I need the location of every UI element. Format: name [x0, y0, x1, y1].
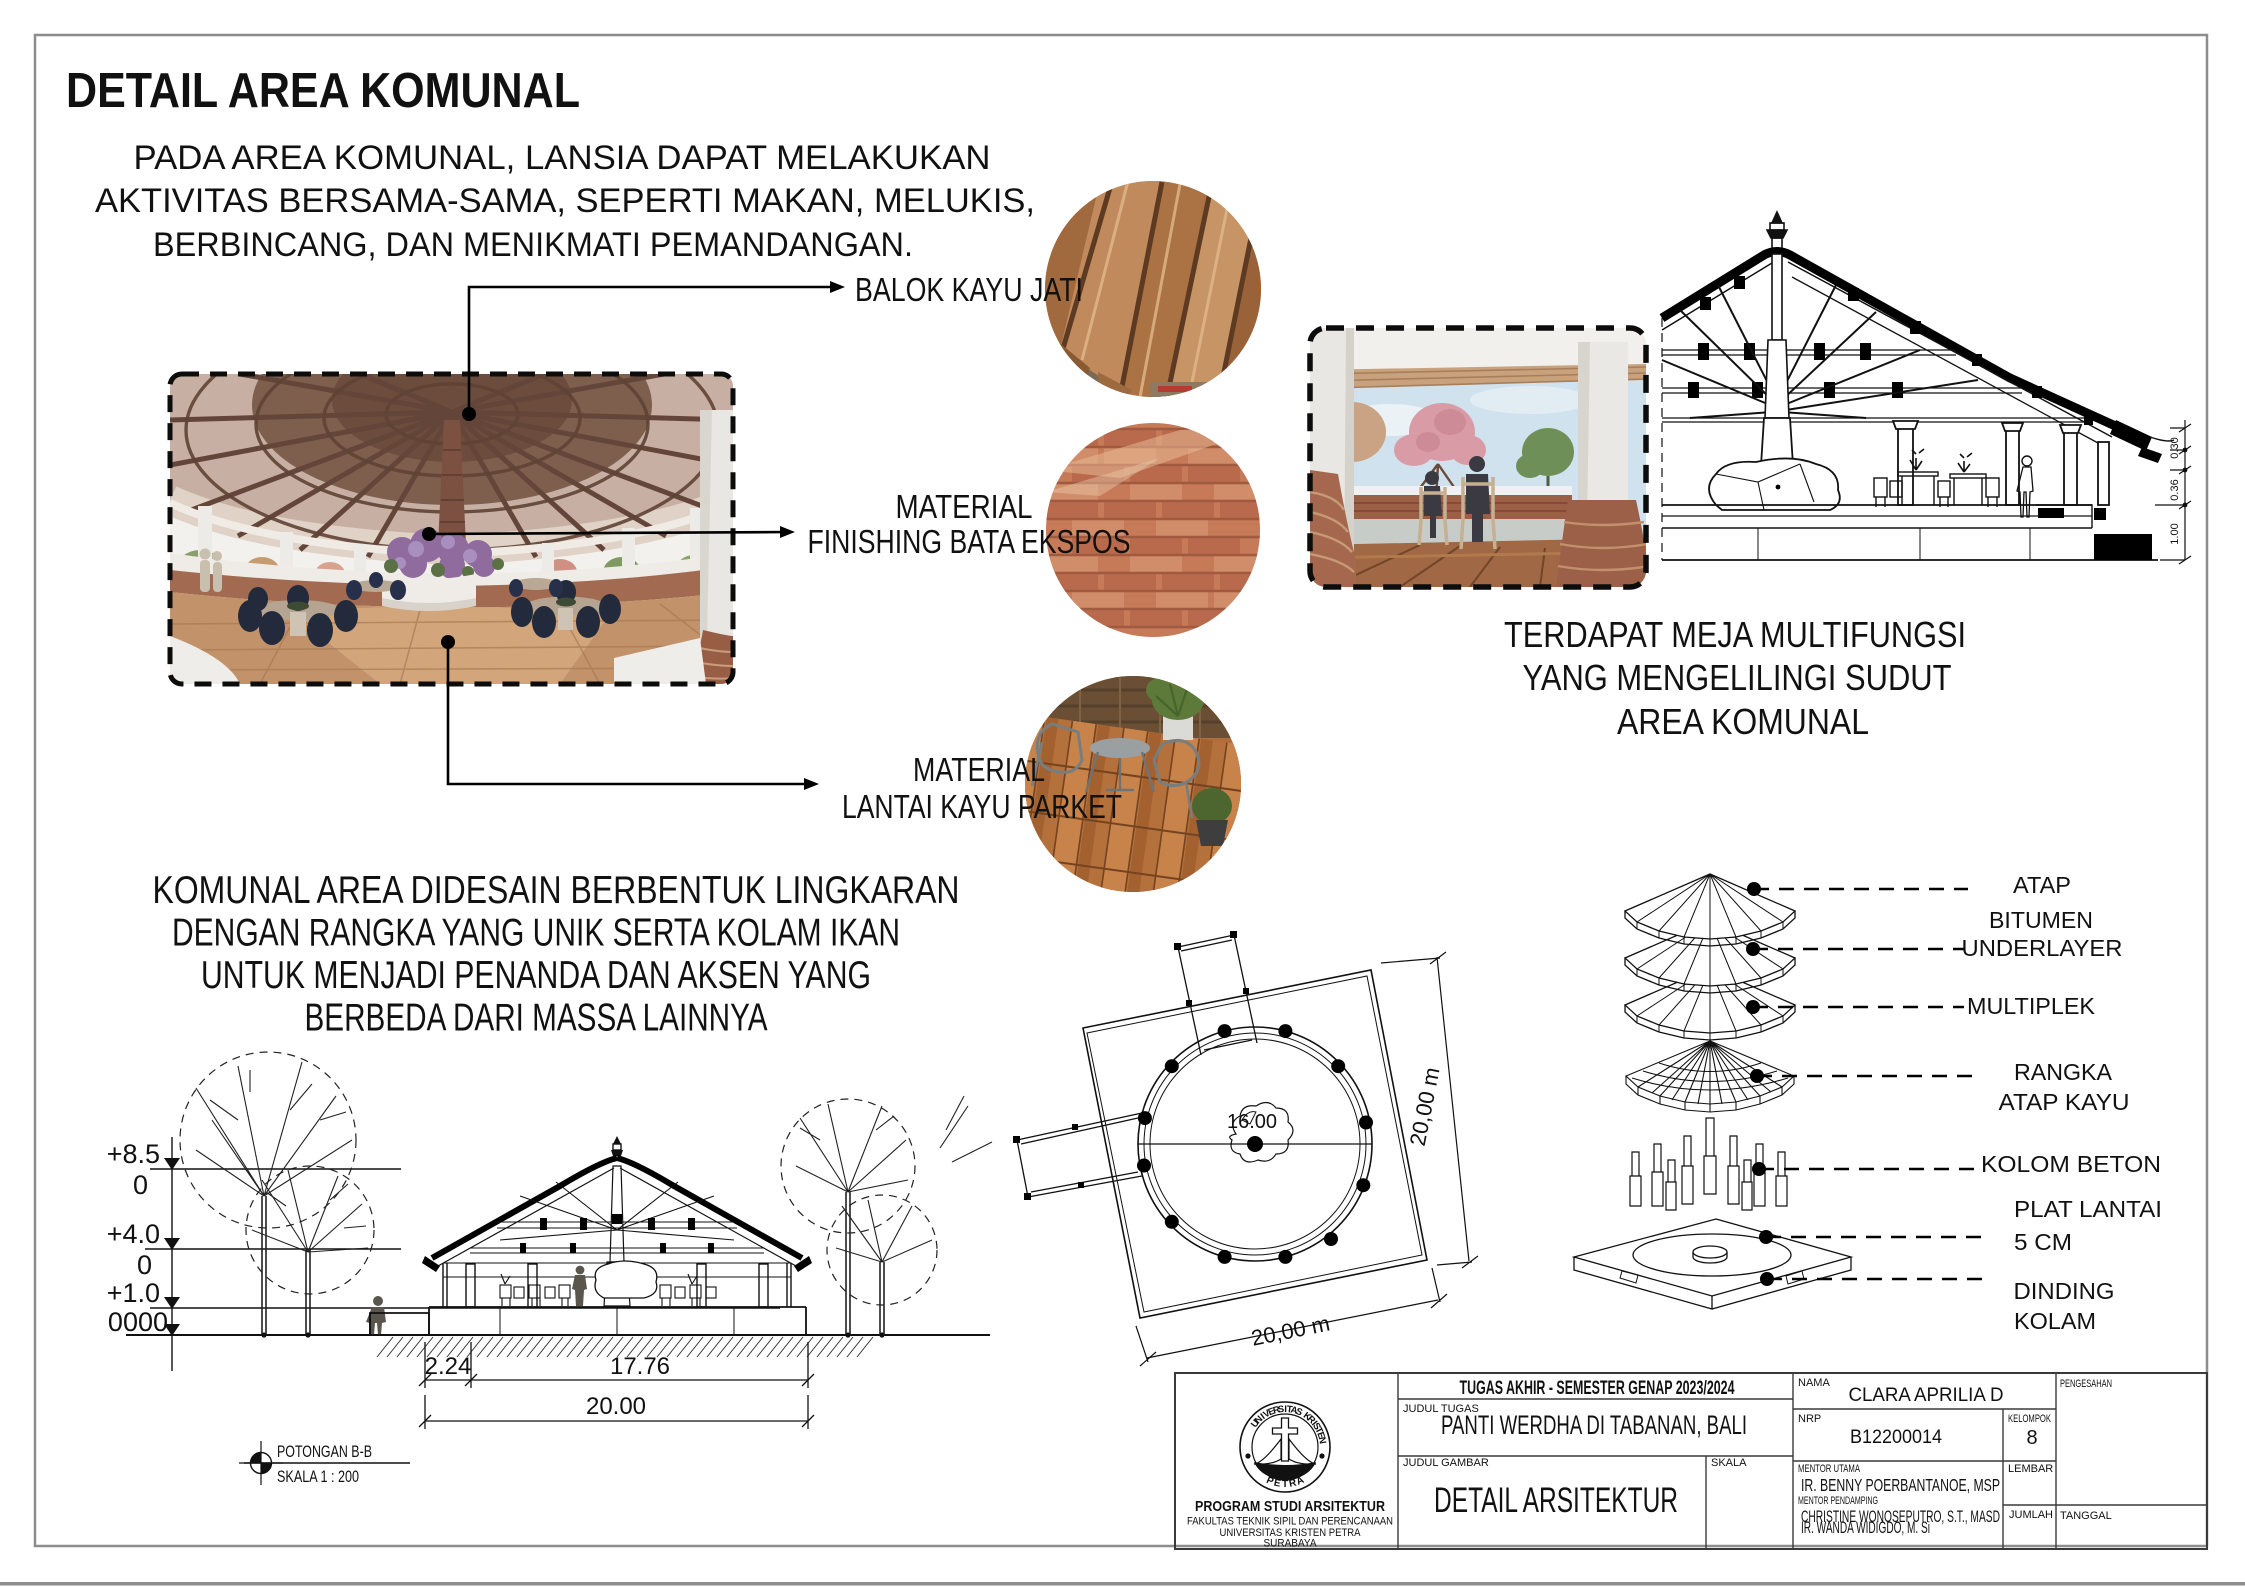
svg-text:DETAIL AREA KOMUNAL: DETAIL AREA KOMUNAL — [66, 64, 580, 118]
svg-text:+1.0: +1.0 — [107, 1278, 160, 1308]
svg-text:16.00: 16.00 — [1227, 1111, 1277, 1133]
svg-text:NRP: NRP — [1798, 1413, 1821, 1425]
svg-text:RANGKA: RANGKA — [2014, 1059, 2113, 1085]
svg-text:MATERIAL: MATERIAL — [913, 751, 1045, 788]
svg-text:POTONGAN B-B: POTONGAN B-B — [277, 1442, 372, 1461]
svg-text:8: 8 — [2026, 1427, 2037, 1449]
svg-text:PADA AREA KOMUNAL, LANSIA DAPA: PADA AREA KOMUNAL, LANSIA DAPAT MELAKUKA… — [134, 139, 991, 177]
svg-text:DENGAN RANGKA YANG UNIK SERTA: DENGAN RANGKA YANG UNIK SERTA KOLAM IKAN — [172, 912, 900, 955]
svg-text:BALOK KAYU JATI: BALOK KAYU JATI — [855, 271, 1083, 308]
svg-text:KOMUNAL AREA DIDESAIN BERBENTU: KOMUNAL AREA DIDESAIN BERBENTUK LINGKARA… — [153, 869, 960, 912]
svg-text:LANTAI KAYU PARKET: LANTAI KAYU PARKET — [842, 788, 1122, 825]
svg-text:FAKULTAS TEKNIK SIPIL DAN PERE: FAKULTAS TEKNIK SIPIL DAN PERENCANAAN — [1187, 1516, 1393, 1528]
svg-text:2.24: 2.24 — [425, 1353, 472, 1380]
svg-text:SKALA 1 : 200: SKALA 1 : 200 — [277, 1467, 359, 1486]
svg-text:MATERIAL: MATERIAL — [896, 488, 1033, 525]
svg-text:JUMLAH: JUMLAH — [2009, 1509, 2053, 1521]
svg-text:20.00: 20.00 — [586, 1393, 646, 1420]
svg-text:MENTOR PENDAMPING: MENTOR PENDAMPING — [1798, 1495, 1878, 1507]
svg-text:20,00 m: 20,00 m — [1405, 1065, 1445, 1148]
svg-text:BERBEDA DARI MASSA LAINNYA: BERBEDA DARI MASSA LAINNYA — [305, 997, 768, 1040]
svg-text:0000: 0000 — [108, 1307, 168, 1337]
svg-text:YANG MENGELILINGI SUDUT: YANG MENGELILINGI SUDUT — [1523, 657, 1952, 698]
svg-text:IR. WANDA WIDIGDO, M. Si: IR. WANDA WIDIGDO, M. Si — [1801, 1519, 1930, 1537]
svg-text:0: 0 — [137, 1250, 152, 1280]
svg-text:ATAP KAYU: ATAP KAYU — [1999, 1089, 2130, 1115]
svg-text:BITUMEN: BITUMEN — [1989, 907, 2093, 933]
svg-text:CLARA APRILIA D: CLARA APRILIA D — [1849, 1385, 2004, 1406]
svg-text:5 CM: 5 CM — [2014, 1229, 2072, 1255]
svg-text:PROGRAM STUDI ARSITEKTUR: PROGRAM STUDI ARSITEKTUR — [1195, 1498, 1385, 1515]
svg-text:0.30: 0.30 — [2169, 437, 2181, 458]
svg-text:MULTIPLEK: MULTIPLEK — [1967, 993, 2096, 1019]
svg-text:PENGESAHAN: PENGESAHAN — [2060, 1378, 2112, 1390]
svg-text:+8.5: +8.5 — [107, 1139, 160, 1169]
svg-text:JUDUL GAMBAR: JUDUL GAMBAR — [1403, 1457, 1489, 1469]
svg-text:LEMBAR: LEMBAR — [2008, 1463, 2053, 1475]
svg-text:1.00: 1.00 — [2169, 523, 2181, 544]
svg-text:IR. BENNY POERBANTANOE, MSP: IR. BENNY POERBANTANOE, MSP — [1801, 1475, 2000, 1495]
svg-text:KOLAM: KOLAM — [2014, 1308, 2096, 1334]
svg-text:TERDAPAT MEJA MULTIFUNGSI: TERDAPAT MEJA MULTIFUNGSI — [1504, 614, 1966, 655]
svg-text:SURABAYA: SURABAYA — [1264, 1538, 1318, 1550]
svg-text:T: T — [1282, 1479, 1288, 1490]
svg-text:FINISHING BATA EKSPOS: FINISHING BATA EKSPOS — [808, 523, 1131, 560]
svg-text:AREA KOMUNAL: AREA KOMUNAL — [1617, 701, 1869, 742]
svg-text:+4.0: +4.0 — [107, 1219, 160, 1249]
svg-text:PLAT LANTAI: PLAT LANTAI — [2014, 1196, 2162, 1222]
svg-text:NAMA: NAMA — [1798, 1377, 1830, 1389]
svg-text:AKTIVITAS BERSAMA-SAMA, SEPERT: AKTIVITAS BERSAMA-SAMA, SEPERTI MAKAN, M… — [95, 182, 1035, 220]
svg-text:TUGAS AKHIR - SEMESTER GENAP 2: TUGAS AKHIR - SEMESTER GENAP 2023/2024 — [1460, 1378, 1735, 1399]
svg-text:BERBINCANG, DAN MENIKMATI PEMA: BERBINCANG, DAN MENIKMATI PEMANDANGAN. — [153, 226, 913, 264]
svg-text:DINDING: DINDING — [2014, 1278, 2115, 1304]
svg-text:20,00 m: 20,00 m — [1249, 1310, 1332, 1350]
svg-text:DETAIL ARSITEKTUR: DETAIL ARSITEKTUR — [1434, 1481, 1678, 1520]
svg-text:TANGGAL: TANGGAL — [2060, 1510, 2112, 1522]
svg-text:17.76: 17.76 — [610, 1353, 670, 1380]
svg-text:ATAP: ATAP — [2013, 872, 2071, 898]
svg-text:UNTUK MENJADI PENANDA DAN AKSE: UNTUK MENJADI PENANDA DAN AKSEN YANG — [201, 954, 871, 997]
svg-text:KOLOM BETON: KOLOM BETON — [1981, 1151, 2161, 1177]
svg-text:KELOMPOK: KELOMPOK — [2008, 1413, 2051, 1425]
svg-text:UNDERLAYER: UNDERLAYER — [1962, 935, 2123, 961]
svg-text:MENTOR UTAMA: MENTOR UTAMA — [1798, 1463, 1860, 1475]
svg-text:0.36: 0.36 — [2169, 479, 2181, 500]
svg-text:B12200014: B12200014 — [1850, 1427, 1942, 1448]
svg-text:0: 0 — [133, 1170, 148, 1200]
svg-text:PANTI WERDHA DI TABANAN, BALI: PANTI WERDHA DI TABANAN, BALI — [1441, 1410, 1747, 1440]
svg-text:SKALA: SKALA — [1711, 1457, 1747, 1469]
